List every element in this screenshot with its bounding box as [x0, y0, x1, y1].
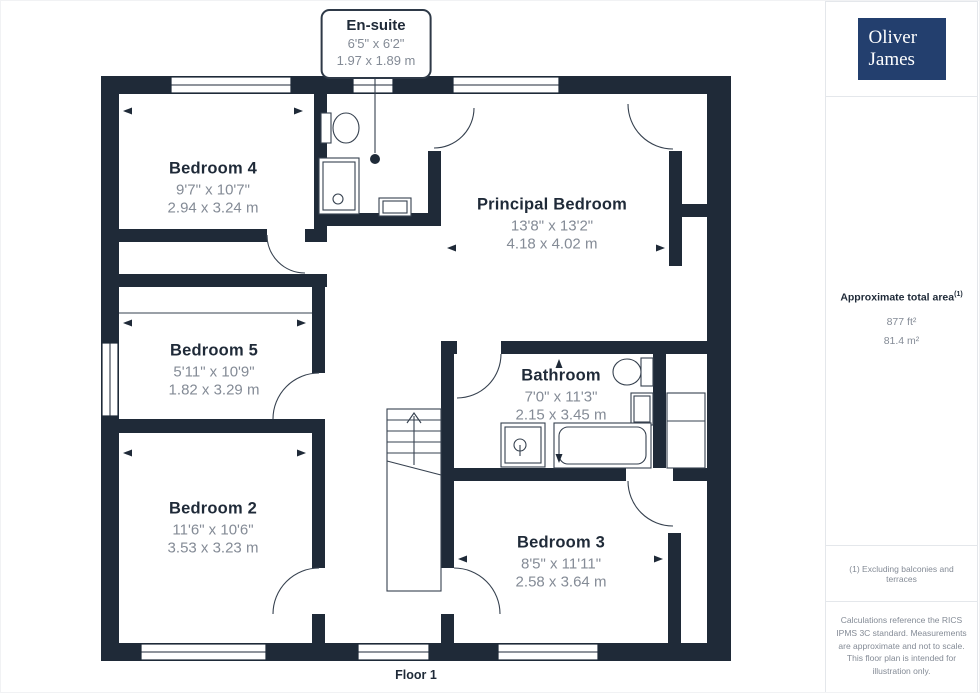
callout-leader-dot: [370, 154, 380, 164]
footnote-marker: (1): [954, 291, 963, 298]
room-label-bedroom2: Bedroom 2 11'6" x 10'6"3.53 x 3.23 m: [168, 500, 259, 559]
bathroom-shower-icon: [501, 423, 545, 467]
info-sidebar: Oliver James Approximate total area(1) 8…: [825, 1, 978, 693]
room-label-principal-bedroom: Principal Bedroom 13'8" x 13'2"4.18 x 4.…: [477, 196, 627, 255]
total-area-section: Approximate total area(1) 877 ft² 81.4 m…: [826, 97, 977, 545]
room-label-bedroom4: Bedroom 4 9'7" x 10'7"2.94 x 3.24 m: [168, 160, 259, 219]
ensuite-callout: En-suite 6'5" x 6'2" 1.97 x 1.89 m: [321, 9, 432, 79]
room-label-bathroom: Bathroom 7'0" x 11'3"2.15 x 3.45 m: [516, 367, 607, 426]
area-footnote: (1) Excluding balconies and terraces: [826, 545, 977, 601]
disclaimer-text: Calculations reference the RICS IPMS 3C …: [836, 614, 967, 678]
ensuite-sink-icon: [379, 198, 411, 216]
ensuite-metric-dims: 1.97 x 1.89 m: [337, 53, 416, 70]
ensuite-shower-icon: [319, 158, 359, 214]
bathroom-toilet-icon: [613, 358, 653, 386]
logo-section: Oliver James: [826, 2, 977, 97]
ensuite-imperial-dims: 6'5" x 6'2": [337, 36, 416, 53]
total-area-title: Approximate total area(1): [840, 291, 962, 304]
bathroom-sink-icon: [631, 393, 653, 425]
room-label-bedroom3: Bedroom 3 8'5" x 11'11"2.58 x 3.64 m: [516, 534, 607, 593]
giraffe360-logo: GIRAFFE360: [836, 689, 967, 693]
oliver-james-logo: Oliver James: [858, 18, 946, 80]
disclaimer-section: Calculations reference the RICS IPMS 3C …: [826, 601, 977, 693]
bathtub-icon: [554, 423, 651, 468]
airing-cupboard-icon: [667, 393, 705, 468]
area-sqm: 81.4 m²: [884, 332, 920, 351]
ensuite-callout-title: En-suite: [337, 17, 416, 34]
ensuite-toilet-icon: [321, 113, 359, 143]
floor-label: Floor 1: [395, 668, 437, 682]
stairs: [387, 409, 441, 591]
area-sqft: 877 ft²: [884, 313, 920, 332]
floorplan-page: En-suite 6'5" x 6'2" 1.97 x 1.89 m Bedro…: [0, 0, 980, 693]
room-label-bedroom5: Bedroom 5 5'11" x 10'9"1.82 x 3.29 m: [169, 342, 260, 401]
